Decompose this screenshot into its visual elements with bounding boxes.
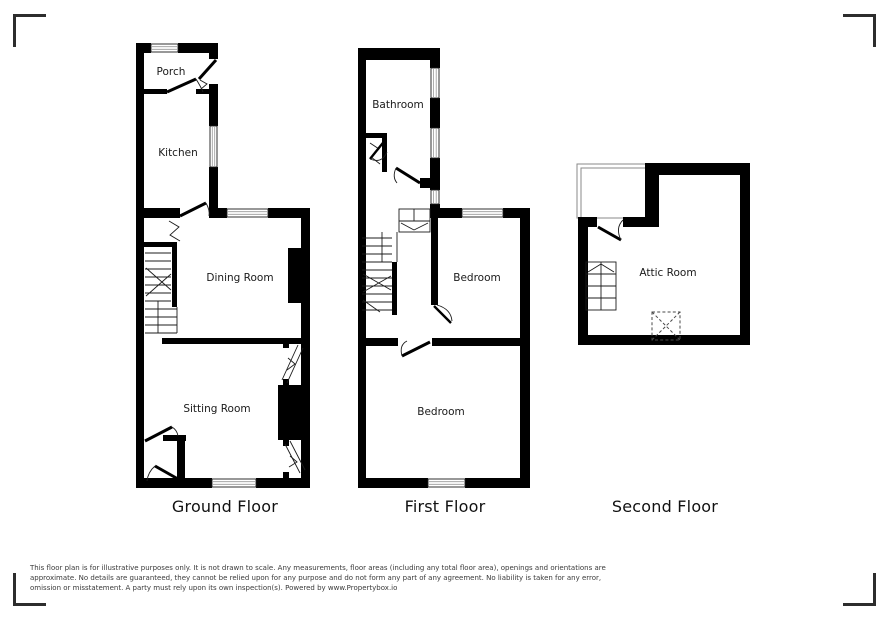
first-staircase (362, 232, 397, 312)
chimney-breast-sitting (278, 385, 310, 440)
second-exterior-walls (578, 163, 750, 345)
first-exterior-walls (358, 48, 530, 488)
room-label-bathroom: Bathroom (372, 99, 424, 111)
disclaimer-line-2: approximate. No details are guaranteed, … (30, 573, 670, 583)
ground-floor-label: Ground Floor (130, 497, 320, 516)
room-label-sitting-room: Sitting Room (183, 403, 250, 415)
first-floor-label: First Floor (350, 497, 540, 516)
chimney-breast-dining (288, 248, 310, 303)
disclaimer: This floor plan is for illustrative purp… (30, 563, 670, 593)
corner-mark-top-right (843, 14, 876, 47)
first-stair-landing (399, 209, 430, 232)
room-label-bedroom-rear: Bedroom (453, 272, 501, 284)
second-floor-plan: Attic Room (570, 155, 760, 355)
ground-floor-plan: Porch Kitchen Dining Room Sitting Room (130, 38, 320, 498)
room-label-porch: Porch (157, 66, 186, 78)
first-floor-plan: Bathroom Bedroom Bedroom (350, 38, 540, 498)
disclaimer-line-3: omission or misstatement. A party must r… (30, 583, 670, 593)
corner-mark-bottom-right (843, 573, 876, 606)
ground-doors (145, 60, 216, 481)
second-floor-label: Second Floor (570, 497, 760, 516)
room-label-attic-room: Attic Room (639, 267, 696, 279)
room-label-kitchen: Kitchen (158, 147, 197, 159)
corner-mark-top-left (13, 14, 46, 47)
second-staircase (586, 262, 616, 310)
room-label-dining-room: Dining Room (206, 272, 273, 284)
dormer-outline (577, 164, 648, 218)
floor-plan-canvas: Porch Kitchen Dining Room Sitting Room (0, 0, 886, 620)
first-interior-walls (358, 133, 530, 346)
room-label-bedroom-front: Bedroom (417, 406, 465, 418)
disclaimer-line-1: This floor plan is for illustrative purp… (30, 563, 670, 573)
second-doors (598, 220, 623, 240)
